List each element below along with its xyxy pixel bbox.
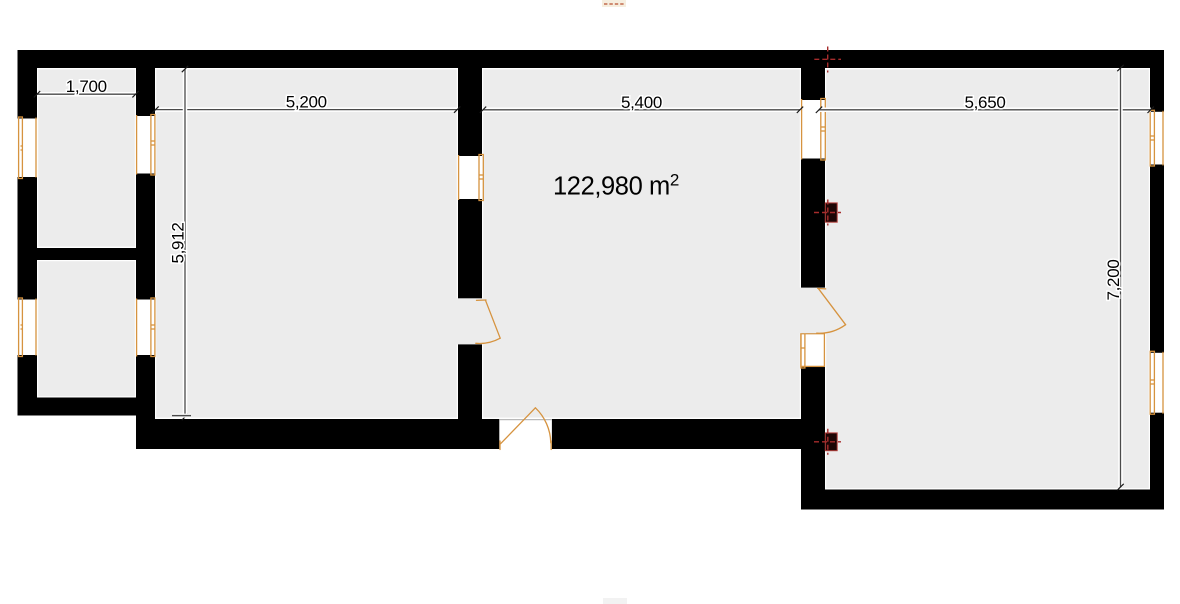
svg-text:7,200: 7,200 <box>1104 259 1123 300</box>
svg-text:122,980 m2: 122,980 m2 <box>553 171 679 201</box>
svg-text:5,400: 5,400 <box>621 93 662 112</box>
svg-text:1,700: 1,700 <box>66 77 107 96</box>
svg-text:5,200: 5,200 <box>286 93 327 112</box>
svg-text:5,650: 5,650 <box>964 93 1005 112</box>
svg-text:5,912: 5,912 <box>169 222 188 263</box>
